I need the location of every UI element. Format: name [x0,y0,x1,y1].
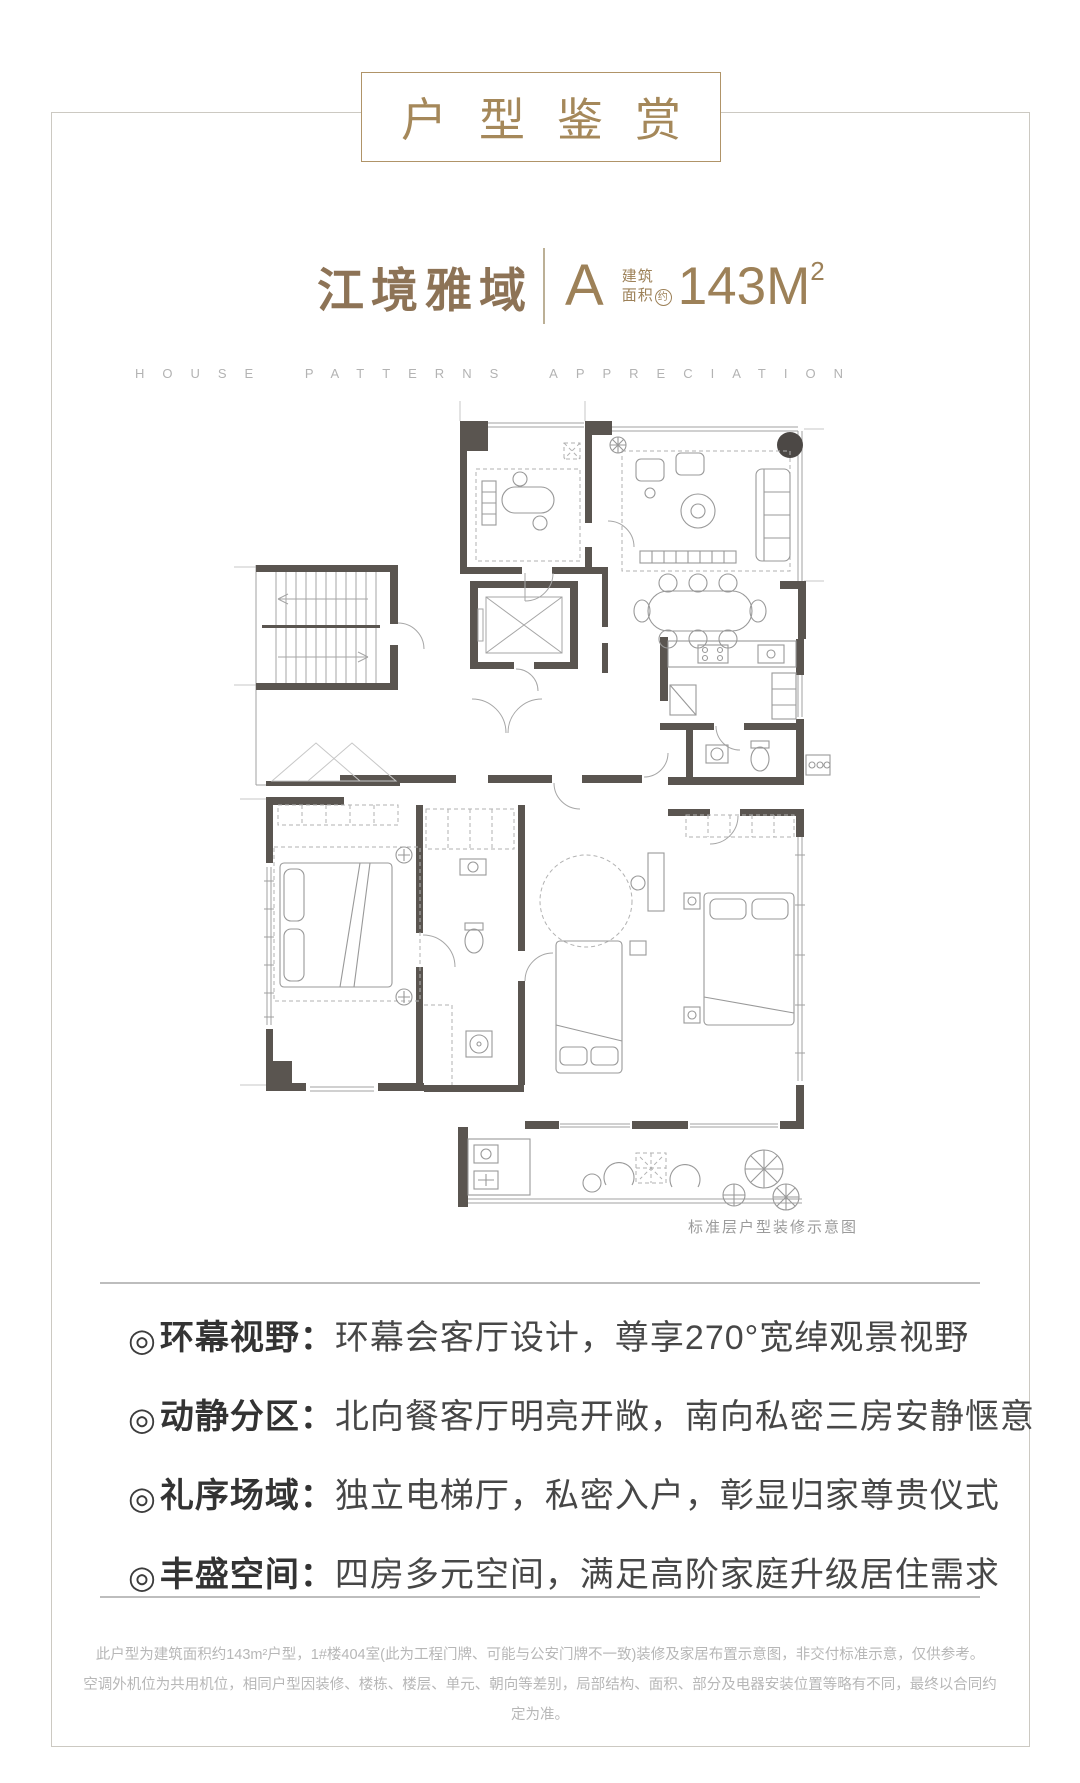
kitchen [668,641,796,719]
disclaimer-line-1: 此户型为建筑面积约143m²户型，1#楼404室(此为工程门牌、可能与公安门牌不… [80,1640,1000,1670]
bullseye-icon: ◎ [128,1321,156,1359]
circled-approx: 约 [655,289,672,306]
bedroom-middle [540,853,664,1073]
elevator [478,597,562,653]
area-label: 建筑 面积约 [622,267,672,306]
disclaimer-line-2: 空调外机位为共用机位，相同户型因装修、楼栋、楼层、单元、朝向等差别，局部结构、面… [80,1670,1000,1730]
page: 户型鉴赏 江境雅域 A 建筑 面积约 143M2 HOUSE PATTERNS … [0,0,1080,1783]
dimension-stubs [234,401,824,1085]
plant-icons [723,1150,799,1210]
bedroom-master [684,815,794,1025]
windows-layer [256,423,805,1203]
unit-type-letter: A [565,257,604,315]
divider-bottom [100,1596,980,1598]
floorplan-caption: 标准层户型装修示意图 [688,1216,858,1237]
bathroom-middle [424,859,492,1085]
feature-item-1: ◎ 环幕视野 ： 环幕会客厅设计，尊享270°宽绰观景视野 [128,1310,968,1359]
feature-item-3: ◎ 礼序场域 ： 独立电梯厅，私密入户，彰显归家尊贵仪式 [128,1468,968,1517]
page-title: 户型鉴赏 [369,84,713,150]
bullseye-icon: ◎ [128,1400,156,1438]
feature-item-2: ◎ 动静分区 ： 北向餐客厅明亮开敞，南向私密三房安静惬意 [128,1389,968,1438]
area-value: 143M2 [678,260,825,313]
closet-strip [426,809,514,849]
dining-area [634,574,766,648]
floorplan-svg [220,385,860,1265]
title-box: 户型鉴赏 [361,72,721,162]
bedroom-left [274,805,420,1005]
divider-top [100,1282,980,1284]
bullseye-icon: ◎ [128,1479,156,1517]
living-room [610,437,790,571]
project-name: 江境雅域 [317,252,533,321]
bathroom-right [706,741,830,775]
walls-layer [256,421,806,1207]
subtitle-divider [543,248,545,324]
english-header: HOUSE PATTERNS APPRECIATION [135,366,925,381]
disclaimer: 此户型为建筑面积约143m²户型，1#楼404室(此为工程门牌、可能与公安门牌不… [80,1640,1000,1730]
subtitle-row: 江境雅域 A 建筑 面积约 143M2 [317,246,825,326]
feature-list: ◎ 环幕视野 ： 环幕会客厅设计，尊享270°宽绰观景视野 ◎ 动静分区 ： 北… [128,1310,968,1626]
feature-item-4: ◎ 丰盛空间 ： 四房多元空间，满足高阶家庭升级居住需求 [128,1547,968,1596]
bullseye-icon: ◎ [128,1558,156,1596]
study-room [476,443,580,561]
